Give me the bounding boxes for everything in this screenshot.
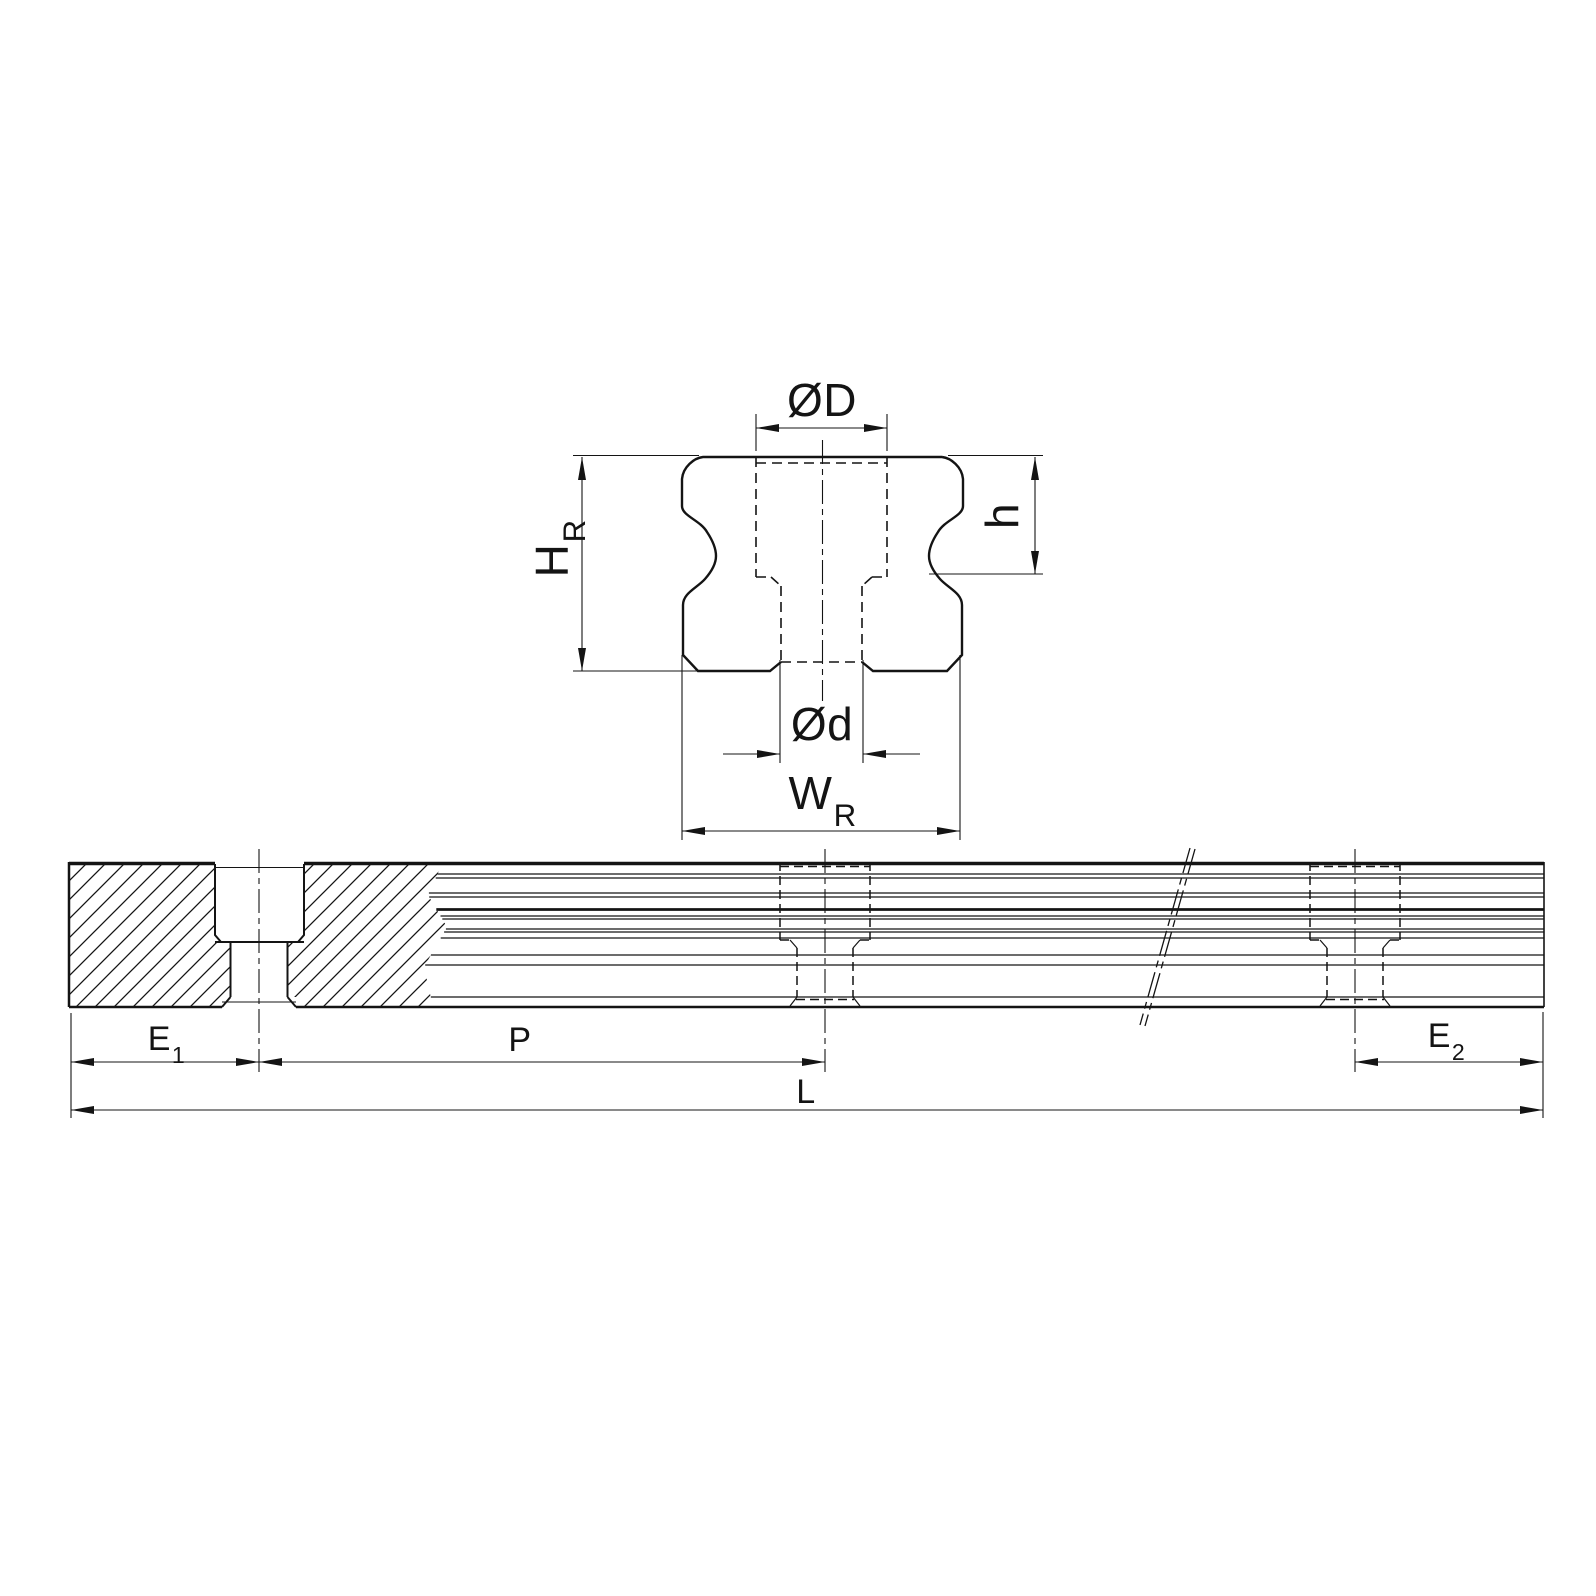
dimension-hole-pitch — [259, 1058, 825, 1066]
dim-label-counterbore-diameter: ØD — [787, 377, 857, 423]
break-line-symbol — [1140, 848, 1195, 1026]
dimension-rail-height — [573, 456, 699, 672]
dim-label-edge-distance-left: E1 — [148, 1022, 185, 1062]
technical-drawing-page: ØD HR h Ød WR E1 P E2 L — [0, 0, 1596, 1596]
rail-profile-lines — [425, 874, 1544, 997]
dim-label-total-length: L — [796, 1075, 815, 1109]
dim-label-rail-width: WR — [788, 770, 855, 824]
dim-label-counterbore-depth: h — [979, 503, 1025, 529]
dim-label-hole-pitch: P — [508, 1023, 531, 1057]
dim-label-rail-height: HR — [529, 521, 583, 578]
dim-label-bolt-hole-diameter: Ød — [791, 701, 853, 747]
dim-label-edge-distance-right: E2 — [1428, 1019, 1465, 1059]
counterbore-hidden-lines — [756, 457, 887, 662]
dimension-edge-distance-right — [1355, 1058, 1543, 1066]
